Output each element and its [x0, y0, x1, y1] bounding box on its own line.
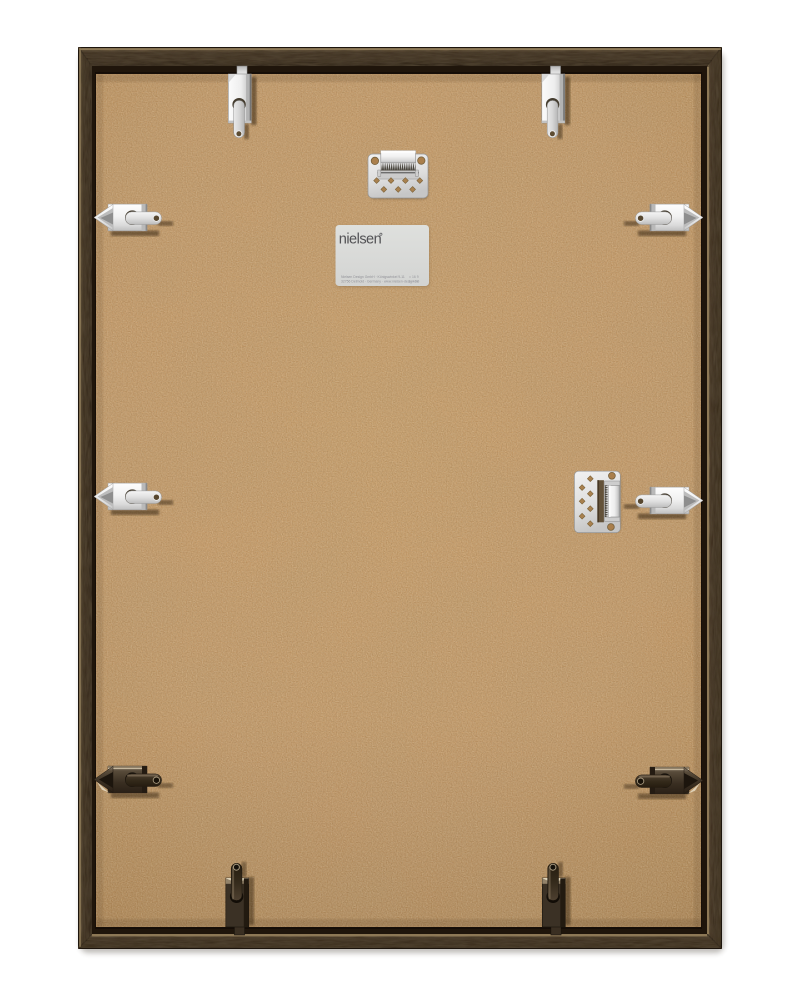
svg-text:□ 16 9: □ 16 9	[409, 275, 419, 279]
svg-text:nielsen: nielsen	[339, 231, 382, 247]
svg-text:▷ +0 0: ▷ +0 0	[409, 280, 419, 284]
svg-text:32756 Detmold · Germany · www.: 32756 Detmold · Germany · www.nielsen-de…	[341, 280, 419, 284]
svg-text:Nielsen Design GmbH · Königswi: Nielsen Design GmbH · Königswinkel 9-11	[341, 275, 405, 279]
